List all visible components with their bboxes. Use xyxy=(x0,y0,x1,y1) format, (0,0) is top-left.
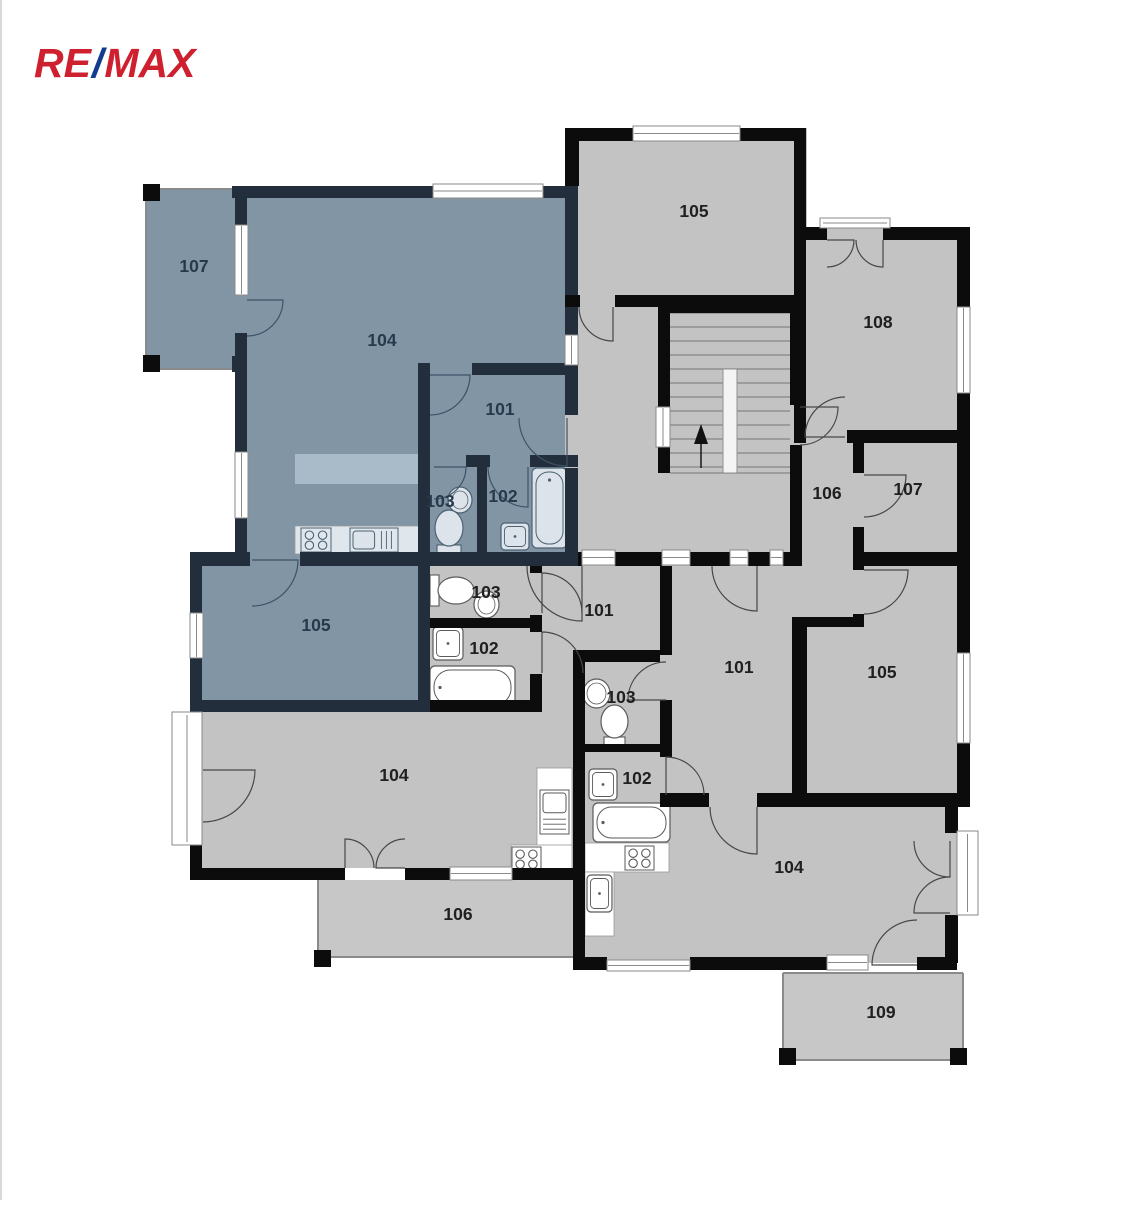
wall xyxy=(405,868,450,880)
washbasin-drain-icon xyxy=(602,783,605,786)
wall xyxy=(530,455,578,467)
wall xyxy=(660,700,672,750)
room-label: 104 xyxy=(379,765,408,785)
washbasin-drain-icon xyxy=(514,535,517,538)
room-label: 109 xyxy=(866,1002,895,1022)
room-fill xyxy=(202,712,578,868)
floor-plan-canvas: 1071041011031021051051081061071011031021… xyxy=(0,0,1137,1200)
wall-corner xyxy=(950,1048,967,1065)
room-label: 105 xyxy=(679,201,708,221)
wall xyxy=(945,807,958,833)
wall xyxy=(757,793,957,807)
wall xyxy=(957,743,970,807)
wall-corner xyxy=(143,184,160,201)
toilet-bowl-icon xyxy=(438,577,474,604)
wall xyxy=(794,128,806,240)
wall xyxy=(190,845,202,870)
sink-basin-icon xyxy=(353,531,375,549)
wall-corner xyxy=(779,1048,796,1065)
wall xyxy=(660,793,709,807)
wall xyxy=(466,455,490,467)
wall xyxy=(232,356,247,372)
wall xyxy=(512,868,578,880)
wall xyxy=(615,552,662,566)
room-label: 107 xyxy=(179,256,208,276)
wall xyxy=(883,227,957,240)
wall xyxy=(783,552,802,566)
wall xyxy=(565,186,578,335)
toilet-bowl-icon xyxy=(435,510,463,546)
wall-corner xyxy=(143,355,160,372)
room-label: 103 xyxy=(606,687,635,707)
wall xyxy=(578,552,582,566)
room-label: 106 xyxy=(443,904,472,924)
room-label: 104 xyxy=(774,857,803,877)
wall xyxy=(658,447,670,473)
wall xyxy=(418,363,430,555)
room-label: 106 xyxy=(812,483,841,503)
wall xyxy=(573,957,607,970)
wall xyxy=(660,752,672,757)
wall xyxy=(573,744,672,752)
wall xyxy=(232,186,433,198)
wall xyxy=(565,128,633,141)
wall xyxy=(806,227,827,240)
room-label: 102 xyxy=(488,486,517,506)
room-label: 101 xyxy=(584,600,613,620)
stair-stringer xyxy=(723,369,737,473)
wall xyxy=(853,443,864,473)
wall xyxy=(190,700,430,712)
room-label: 101 xyxy=(485,399,514,419)
wall xyxy=(477,467,487,555)
wall xyxy=(565,468,578,552)
room-label: 102 xyxy=(469,638,498,658)
wall xyxy=(235,186,247,225)
wall xyxy=(957,393,970,443)
kitchen-counter xyxy=(585,843,669,872)
room-fill xyxy=(145,188,242,370)
wall xyxy=(565,295,580,307)
room-label: 103 xyxy=(471,582,500,602)
wall xyxy=(430,618,542,628)
room-label: 102 xyxy=(622,768,651,788)
washbasin-drain-icon xyxy=(447,642,450,645)
wall xyxy=(578,650,660,662)
wall xyxy=(190,557,202,613)
wall xyxy=(957,227,970,307)
room-label: 107 xyxy=(893,479,922,499)
wall xyxy=(864,552,970,566)
wall-corner xyxy=(314,950,331,967)
bathtub-drain-icon xyxy=(601,821,604,824)
wall xyxy=(430,700,542,712)
room-label: 103 xyxy=(425,491,454,511)
wall xyxy=(658,300,793,313)
wall xyxy=(792,618,807,803)
wall xyxy=(847,430,957,443)
wall xyxy=(853,614,864,627)
room-label: 108 xyxy=(863,312,892,332)
bathtub-drain-icon xyxy=(438,686,441,689)
wall xyxy=(690,957,827,970)
room-fill xyxy=(565,128,807,552)
bathtub-drain-icon xyxy=(548,478,551,481)
toilet-bowl-icon xyxy=(601,705,628,738)
wall xyxy=(957,443,970,553)
wall xyxy=(573,650,585,963)
wall xyxy=(853,545,864,570)
wall xyxy=(235,333,247,452)
wall xyxy=(658,300,670,407)
wall xyxy=(530,566,542,573)
sink-basin-icon xyxy=(543,793,566,813)
wall xyxy=(472,363,578,375)
wall xyxy=(530,674,542,712)
room-label: 105 xyxy=(301,615,330,635)
washbasin-drain-icon xyxy=(598,892,601,895)
wall xyxy=(957,553,970,653)
wall xyxy=(794,240,806,443)
wall xyxy=(190,868,345,880)
wall xyxy=(690,552,730,566)
wall xyxy=(235,518,247,557)
kitchen-island xyxy=(295,454,421,484)
room-label: 101 xyxy=(724,657,753,677)
wall xyxy=(418,566,430,712)
floor-plan: 1071041011031021051051081061071011031021… xyxy=(0,0,1137,1200)
wall xyxy=(748,552,770,566)
room-label: 104 xyxy=(367,330,396,350)
wall xyxy=(300,552,578,566)
wall xyxy=(790,445,802,552)
room-label: 105 xyxy=(867,662,896,682)
wall xyxy=(945,915,958,963)
wall xyxy=(660,566,672,655)
